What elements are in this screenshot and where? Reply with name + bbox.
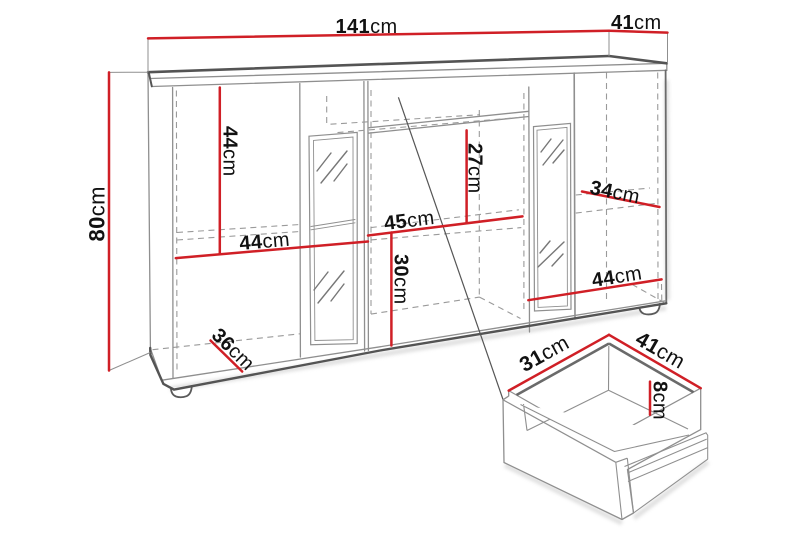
svg-text:44cm: 44cm bbox=[219, 126, 241, 177]
svg-text:30cm: 30cm bbox=[390, 254, 412, 305]
svg-text:80cm: 80cm bbox=[85, 186, 110, 241]
svg-text:27cm: 27cm bbox=[464, 143, 486, 194]
svg-text:8cm: 8cm bbox=[649, 381, 671, 420]
svg-text:41cm: 41cm bbox=[611, 12, 662, 34]
svg-text:36cm: 36cm bbox=[207, 324, 259, 375]
svg-text:44cm: 44cm bbox=[239, 229, 291, 255]
svg-text:45cm: 45cm bbox=[383, 207, 436, 235]
svg-text:34cm: 34cm bbox=[588, 177, 642, 209]
svg-text:141cm: 141cm bbox=[336, 16, 398, 38]
svg-text:44cm: 44cm bbox=[590, 262, 643, 292]
